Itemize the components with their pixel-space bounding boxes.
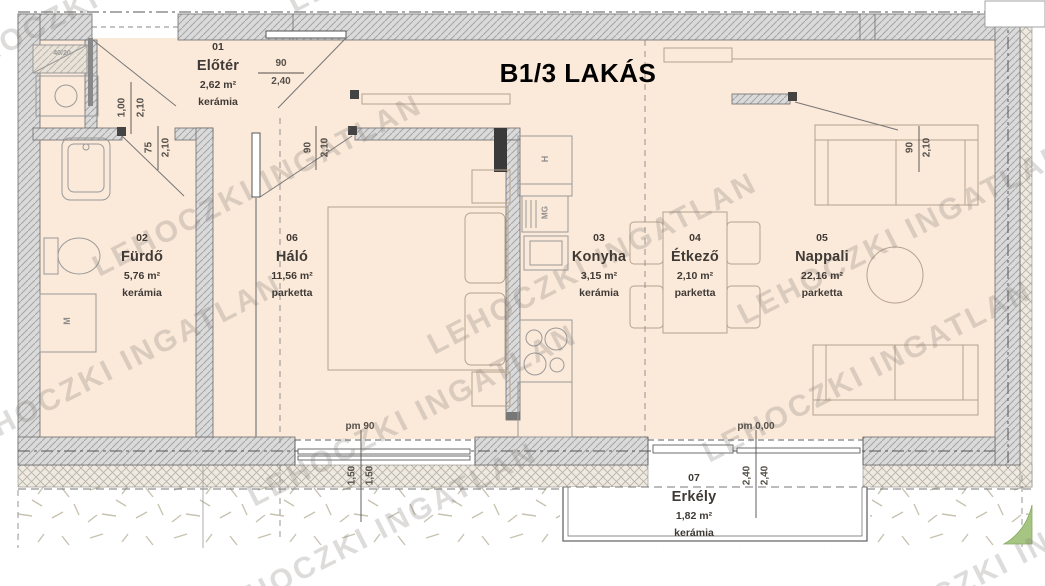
floor-plan: LEHOCZKI INGATLAN LEHOCZKI INGATLAN LEHO…: [0, 0, 1045, 586]
room-floor: parketta: [767, 287, 877, 300]
fridge-label: H: [540, 144, 550, 174]
dim-bedroomdoor-height: 2,10: [320, 131, 331, 165]
room-area: 22,16 m²: [767, 270, 877, 283]
room-name: Erkély: [639, 488, 749, 506]
room-name: Háló: [237, 248, 347, 266]
entrance-door-leaf: [88, 38, 93, 106]
dim-entrance-height: 2,10: [136, 91, 147, 125]
dim-hallopening-height: 2,40: [264, 76, 298, 87]
balcony-door: [648, 437, 863, 465]
room-label-furdo: 02 Fürdő 5,76 m² kerámia: [87, 232, 197, 301]
plan-title: B1/3 LAKÁS: [488, 58, 668, 89]
room-name: Konyha: [544, 248, 654, 266]
room-area: 2,62 m²: [163, 79, 273, 92]
dim-livingdoor-width: 90: [905, 131, 916, 165]
room-name: Fürdő: [87, 248, 197, 266]
room-name: Étkező: [640, 248, 750, 266]
room-area: 2,10 m²: [640, 270, 750, 283]
dim-hallopening-width: 90: [264, 58, 298, 69]
room-number: 03: [544, 232, 654, 245]
room-floor: kerámia: [163, 96, 273, 109]
room-number: 05: [767, 232, 877, 245]
dim-balconydoor-a: 2,40: [742, 459, 753, 493]
dim-balconydoor-sill: pm 0,00: [729, 421, 783, 432]
dim-entrance-width: 1,00: [117, 91, 128, 125]
room-floor: kerámia: [544, 287, 654, 300]
room-floor: parketta: [640, 287, 750, 300]
bedroom-window: [295, 439, 475, 465]
dim-window-b: 1,50: [365, 459, 376, 493]
room-label-halo: 06 Háló 11,56 m² parketta: [237, 232, 347, 301]
dim-bedroomdoor-width: 90: [303, 131, 314, 165]
room-area: 5,76 m²: [87, 270, 197, 283]
room-label-erkely: 07 Erkély 1,82 m² kerámia: [639, 472, 749, 541]
room-area: 3,15 m²: [544, 270, 654, 283]
room-floor: kerámia: [639, 527, 749, 540]
grass-area: [18, 487, 1032, 547]
dim-bathdoor-width: 75: [144, 131, 155, 165]
room-number: 07: [639, 472, 749, 485]
room-number: 01: [163, 41, 273, 54]
room-area: 11,56 m²: [237, 270, 347, 283]
room-floor: parketta: [237, 287, 347, 300]
room-area: 1,82 m²: [639, 510, 749, 523]
washing-machine-label: M: [62, 306, 72, 336]
room-label-konyha: 03 Konyha 3,15 m² kerámia: [544, 232, 654, 301]
dim-window-sill: pm 90: [336, 421, 384, 432]
dim-livingdoor-height: 2,10: [922, 131, 933, 165]
room-number: 02: [87, 232, 197, 245]
room-label-nappali: 05 Nappali 22,16 m² parketta: [767, 232, 877, 301]
room-name: Előtér: [163, 57, 273, 75]
room-number: 06: [237, 232, 347, 245]
room-floor: kerámia: [87, 287, 197, 300]
dishwasher-label: MG: [541, 198, 550, 228]
shaft-label: 40/20: [40, 50, 84, 57]
room-name: Nappali: [767, 248, 877, 266]
neighbor-structure: [985, 1, 1045, 27]
shaft-block: [494, 128, 507, 172]
room-number: 04: [640, 232, 750, 245]
dim-bathdoor-height: 2,10: [161, 131, 172, 165]
room-label-etkezo: 04 Étkező 2,10 m² parketta: [640, 232, 750, 301]
dim-window-a: 1,50: [347, 459, 358, 493]
room-label-eloter: 01 Előtér 2,62 m² kerámia: [163, 41, 273, 110]
dim-balconydoor-b: 2,40: [760, 459, 771, 493]
